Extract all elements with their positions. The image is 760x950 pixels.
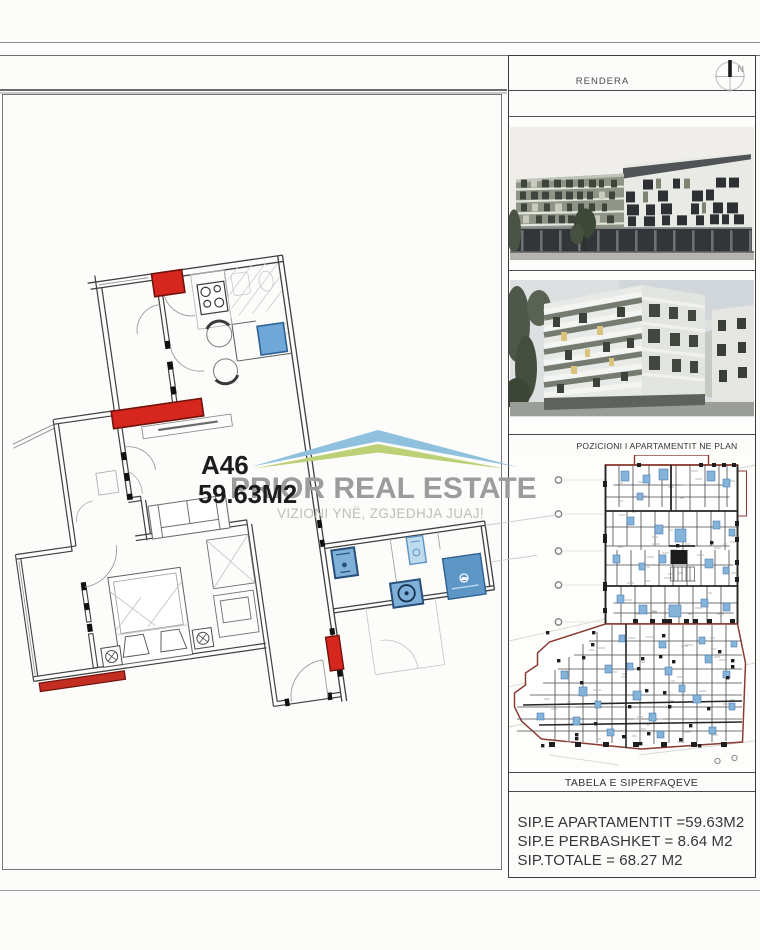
svg-text:VIZIONI YNË, ZGJEDHJA JUAJ!: VIZIONI YNË, ZGJEDHJA JUAJ!	[277, 506, 484, 521]
svg-text:N: N	[737, 64, 744, 74]
